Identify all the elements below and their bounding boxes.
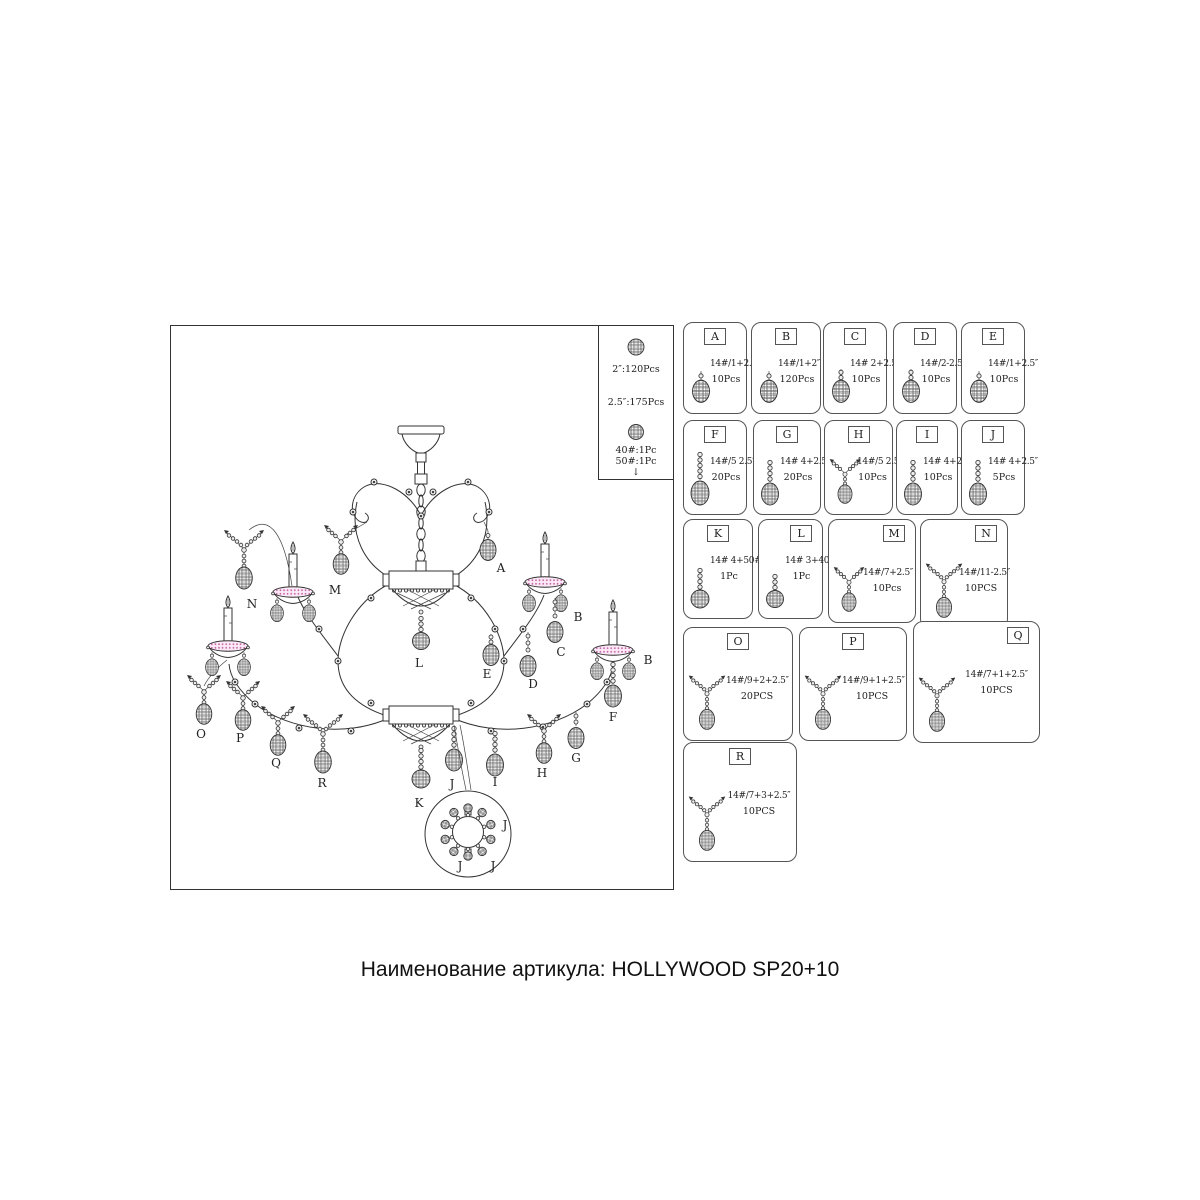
part-qty: 1Pc <box>710 569 748 585</box>
part-spec: 14#/5 2.5″ <box>710 455 742 470</box>
part-qty: 120Pcs <box>778 372 816 388</box>
part-qty: 10Pcs <box>988 372 1020 388</box>
part-letter: N <box>975 525 997 542</box>
svg-text:A: A <box>496 561 506 575</box>
part-letter: C <box>844 328 866 345</box>
part-qty: 10Pcs <box>857 470 888 486</box>
part-qty: 10PCS <box>958 683 1035 699</box>
pendant-ball-icon <box>688 566 712 610</box>
candle-far-left <box>206 596 251 676</box>
svg-text:M: M <box>329 583 341 597</box>
candle-mid-right <box>523 532 568 612</box>
part-qty: 10Pcs <box>863 581 911 597</box>
pendant-y-icon <box>802 672 844 732</box>
part-spec: 14#/9+2+2.5″ <box>726 674 788 689</box>
svg-text:D: D <box>528 677 538 691</box>
svg-text:E: E <box>483 667 492 681</box>
pendant-y-icon <box>916 674 958 734</box>
part-qty: 10Pcs <box>850 372 882 388</box>
part-letter: D <box>914 328 936 345</box>
part-qty: 20Pcs <box>780 470 816 486</box>
part-letter: J <box>982 426 1004 443</box>
pendant-M <box>324 522 367 574</box>
crystal-count-legend: 2″:120Pcs 2.5″:175Pcs 40#:1Pc 50#:1Pc ↓ <box>598 325 674 480</box>
part-box-I: I 14# 4+2.5″10Pcs <box>896 420 958 515</box>
pendant-y-icon <box>831 564 867 614</box>
part-letter: K <box>707 525 729 542</box>
svg-text:H: H <box>537 766 547 780</box>
hanging-chain <box>416 484 426 572</box>
part-spec: 14#/1+2.5″ <box>710 357 742 372</box>
part-letter: O <box>727 633 749 650</box>
svg-text:F: F <box>609 710 617 724</box>
part-box-L: L 14# 3+40#1Pc <box>758 519 823 619</box>
svg-text:J: J <box>501 818 508 832</box>
part-box-F: F 14#/5 2.5″20Pcs <box>683 420 747 515</box>
pendant-chain-icon <box>758 458 782 506</box>
part-qty: 10PCS <box>842 689 902 705</box>
svg-text:G: G <box>571 751 581 765</box>
pendant-G <box>568 712 584 749</box>
pendant-N <box>224 524 292 589</box>
svg-text:J: J <box>456 859 463 873</box>
crystal-ball-icon <box>627 422 645 442</box>
part-box-E: E 14#/1+2.5″10Pcs <box>961 322 1025 414</box>
pendant-ball-icon <box>763 572 787 610</box>
svg-text:B: B <box>644 653 653 667</box>
part-letter: Q <box>1007 627 1029 644</box>
part-spec: 14# 4+50# <box>710 554 748 569</box>
part-qty: 5Pcs <box>988 470 1020 486</box>
part-box-Q: Q 14#/7+1+2.5″10PCS <box>913 621 1040 743</box>
part-qty: 1Pc <box>785 569 818 585</box>
part-box-J: J 14# 4+2.5″5Pcs <box>961 420 1025 515</box>
legend-line: 2″:120Pcs <box>612 364 660 375</box>
pendant-chain-icon <box>688 450 712 506</box>
lower-basket <box>383 706 459 749</box>
part-box-C: C 14# 2+2.5″10Pcs <box>823 322 887 414</box>
upper-basket <box>383 571 459 614</box>
pendant-A <box>480 522 496 561</box>
pendant-chain-icon <box>901 458 925 506</box>
part-spec: 14#/7+2.5″ <box>863 566 911 581</box>
part-box-K: K 14# 4+50#1Pc <box>683 519 753 619</box>
part-qty: 10PCS <box>959 581 1003 597</box>
svg-text:N: N <box>247 597 258 611</box>
crystal-ball-icon <box>626 336 646 358</box>
part-spec: 14# 2+2.5″ <box>850 357 882 372</box>
svg-text:C: C <box>556 645 565 659</box>
svg-text:I: I <box>493 775 498 789</box>
ceiling-canopy <box>398 426 444 484</box>
part-box-A: A 14#/1+2.5″10Pcs <box>683 322 747 414</box>
part-qty: 10PCS <box>726 804 792 820</box>
part-spec: 14#/11-2.5″ <box>959 566 1003 581</box>
pendant-y-icon <box>686 793 728 853</box>
pendant-D <box>520 632 536 677</box>
legend-line: 40#:1Pc <box>615 445 656 456</box>
part-qty: 20Pcs <box>710 470 742 486</box>
part-spec: 14# 3+40# <box>785 554 818 569</box>
bulb-ring-inset <box>425 725 511 877</box>
part-spec: 14# 4+2.5″ <box>780 455 816 470</box>
pendant-R <box>303 714 343 773</box>
svg-text:J: J <box>489 859 496 873</box>
part-spec: 14#/1+2.5″ <box>988 357 1020 372</box>
part-box-O: O 14#/9+2+2.5″20PCS <box>683 627 793 741</box>
svg-text:K: K <box>415 796 425 810</box>
body-arms <box>298 584 544 716</box>
pendant-K <box>412 748 430 788</box>
legend-line: 2.5″:175Pcs <box>608 397 665 408</box>
part-letter: G <box>776 426 798 443</box>
part-letter: M <box>883 525 905 542</box>
part-box-R: R 14#/7+3+2.5″10PCS <box>683 742 797 862</box>
svg-text:L: L <box>415 656 423 670</box>
part-box-D: D 14#/2-2.5″10Pcs <box>893 322 957 414</box>
part-spec: 14# 4+2.5″ <box>923 455 953 470</box>
part-qty: 10Pcs <box>920 372 952 388</box>
part-box-B: B 14#/1+2″120Pcs <box>751 322 821 414</box>
pendant-O <box>187 675 221 724</box>
part-letter: A <box>704 328 726 345</box>
part-box-N: N 14#/11-2.5″10PCS <box>920 519 1008 629</box>
legend-line: 50#:1Pc <box>615 456 656 467</box>
part-letter: R <box>729 748 751 765</box>
part-letter: L <box>790 525 812 542</box>
svg-text:B: B <box>574 610 583 624</box>
part-letter: P <box>842 633 864 650</box>
assembly-sheet: A B B C D E F G H I J K L M N O P Q R J <box>0 0 1200 1200</box>
part-box-P: P 14#/9+1+2.5″10PCS <box>799 627 907 741</box>
part-spec: 14#/7+3+2.5″ <box>726 789 792 804</box>
part-box-G: G 14# 4+2.5″20Pcs <box>753 420 821 515</box>
part-letter: I <box>916 426 938 443</box>
part-spec: 14#/2-2.5″ <box>920 357 952 372</box>
part-letter: E <box>982 328 1004 345</box>
article-caption: Наименование артикула: HOLLYWOOD SP20+10 <box>0 958 1200 982</box>
pendant-chain-icon <box>966 458 990 506</box>
down-arrow-icon: ↓ <box>632 467 640 478</box>
svg-text:P: P <box>236 731 244 745</box>
pendant-y-icon <box>686 672 728 732</box>
part-spec: 14#/7+1+2.5″ <box>958 668 1035 683</box>
part-letter: B <box>775 328 797 345</box>
part-qty: 20PCS <box>726 689 788 705</box>
pendant-E <box>483 626 499 666</box>
part-qty: 10Pcs <box>710 372 742 388</box>
part-spec: 14# 4+2.5″ <box>988 455 1020 470</box>
part-letter: F <box>704 426 726 443</box>
svg-text:O: O <box>196 727 206 741</box>
part-qty: 10Pcs <box>923 470 953 486</box>
part-letter: H <box>848 426 870 443</box>
part-spec: 14#/5 2.5″ <box>857 455 888 470</box>
pendant-I <box>487 731 504 776</box>
svg-text:R: R <box>317 776 327 790</box>
candle-mid-left <box>271 542 316 622</box>
svg-text:J: J <box>448 777 455 791</box>
pendant-L <box>413 616 430 650</box>
part-box-M: M 14#/7+2.5″10Pcs <box>828 519 916 623</box>
pendant-J <box>446 726 463 771</box>
part-box-H: H 14#/5 2.5″10Pcs <box>824 420 893 515</box>
part-spec: 14#/9+1+2.5″ <box>842 674 902 689</box>
part-spec: 14#/1+2″ <box>778 357 816 372</box>
svg-text:Q: Q <box>271 756 281 770</box>
pendant-Q <box>261 706 295 755</box>
